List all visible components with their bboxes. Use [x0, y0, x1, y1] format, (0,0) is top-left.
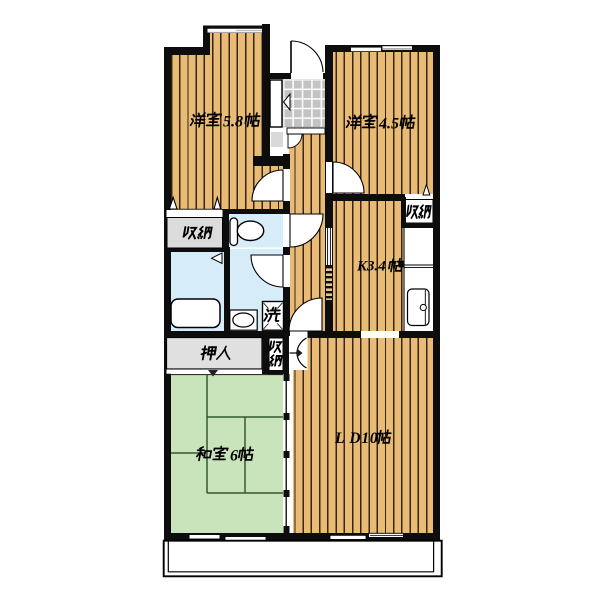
svg-text:4.5: 4.5: [378, 116, 399, 133]
svg-text:K3.4: K3.4: [356, 259, 386, 275]
svg-text:5.8: 5.8: [223, 114, 243, 131]
svg-text:6: 6: [230, 448, 238, 465]
svg-text:L D10: L D10: [334, 430, 378, 447]
